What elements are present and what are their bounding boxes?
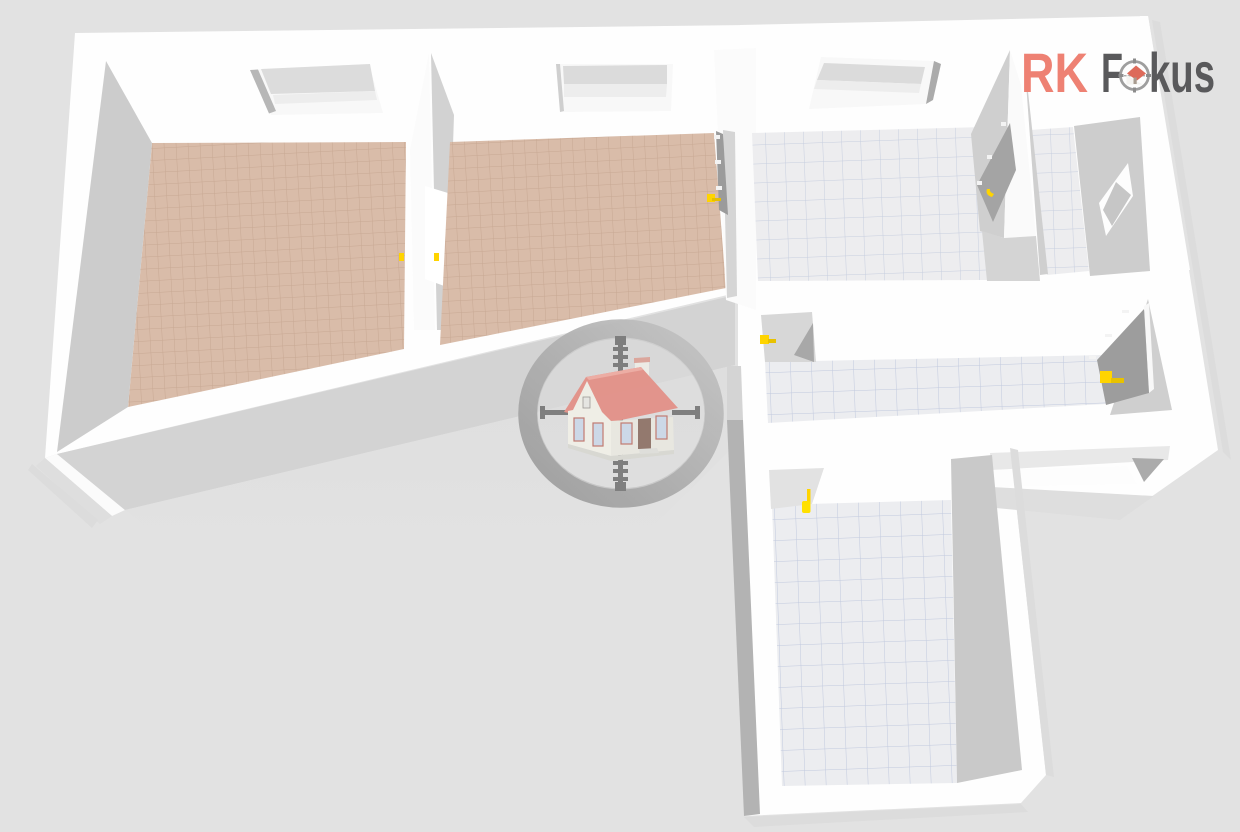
svg-text:kus: kus [1149,41,1215,104]
svg-text:RK: RK [1021,41,1088,104]
